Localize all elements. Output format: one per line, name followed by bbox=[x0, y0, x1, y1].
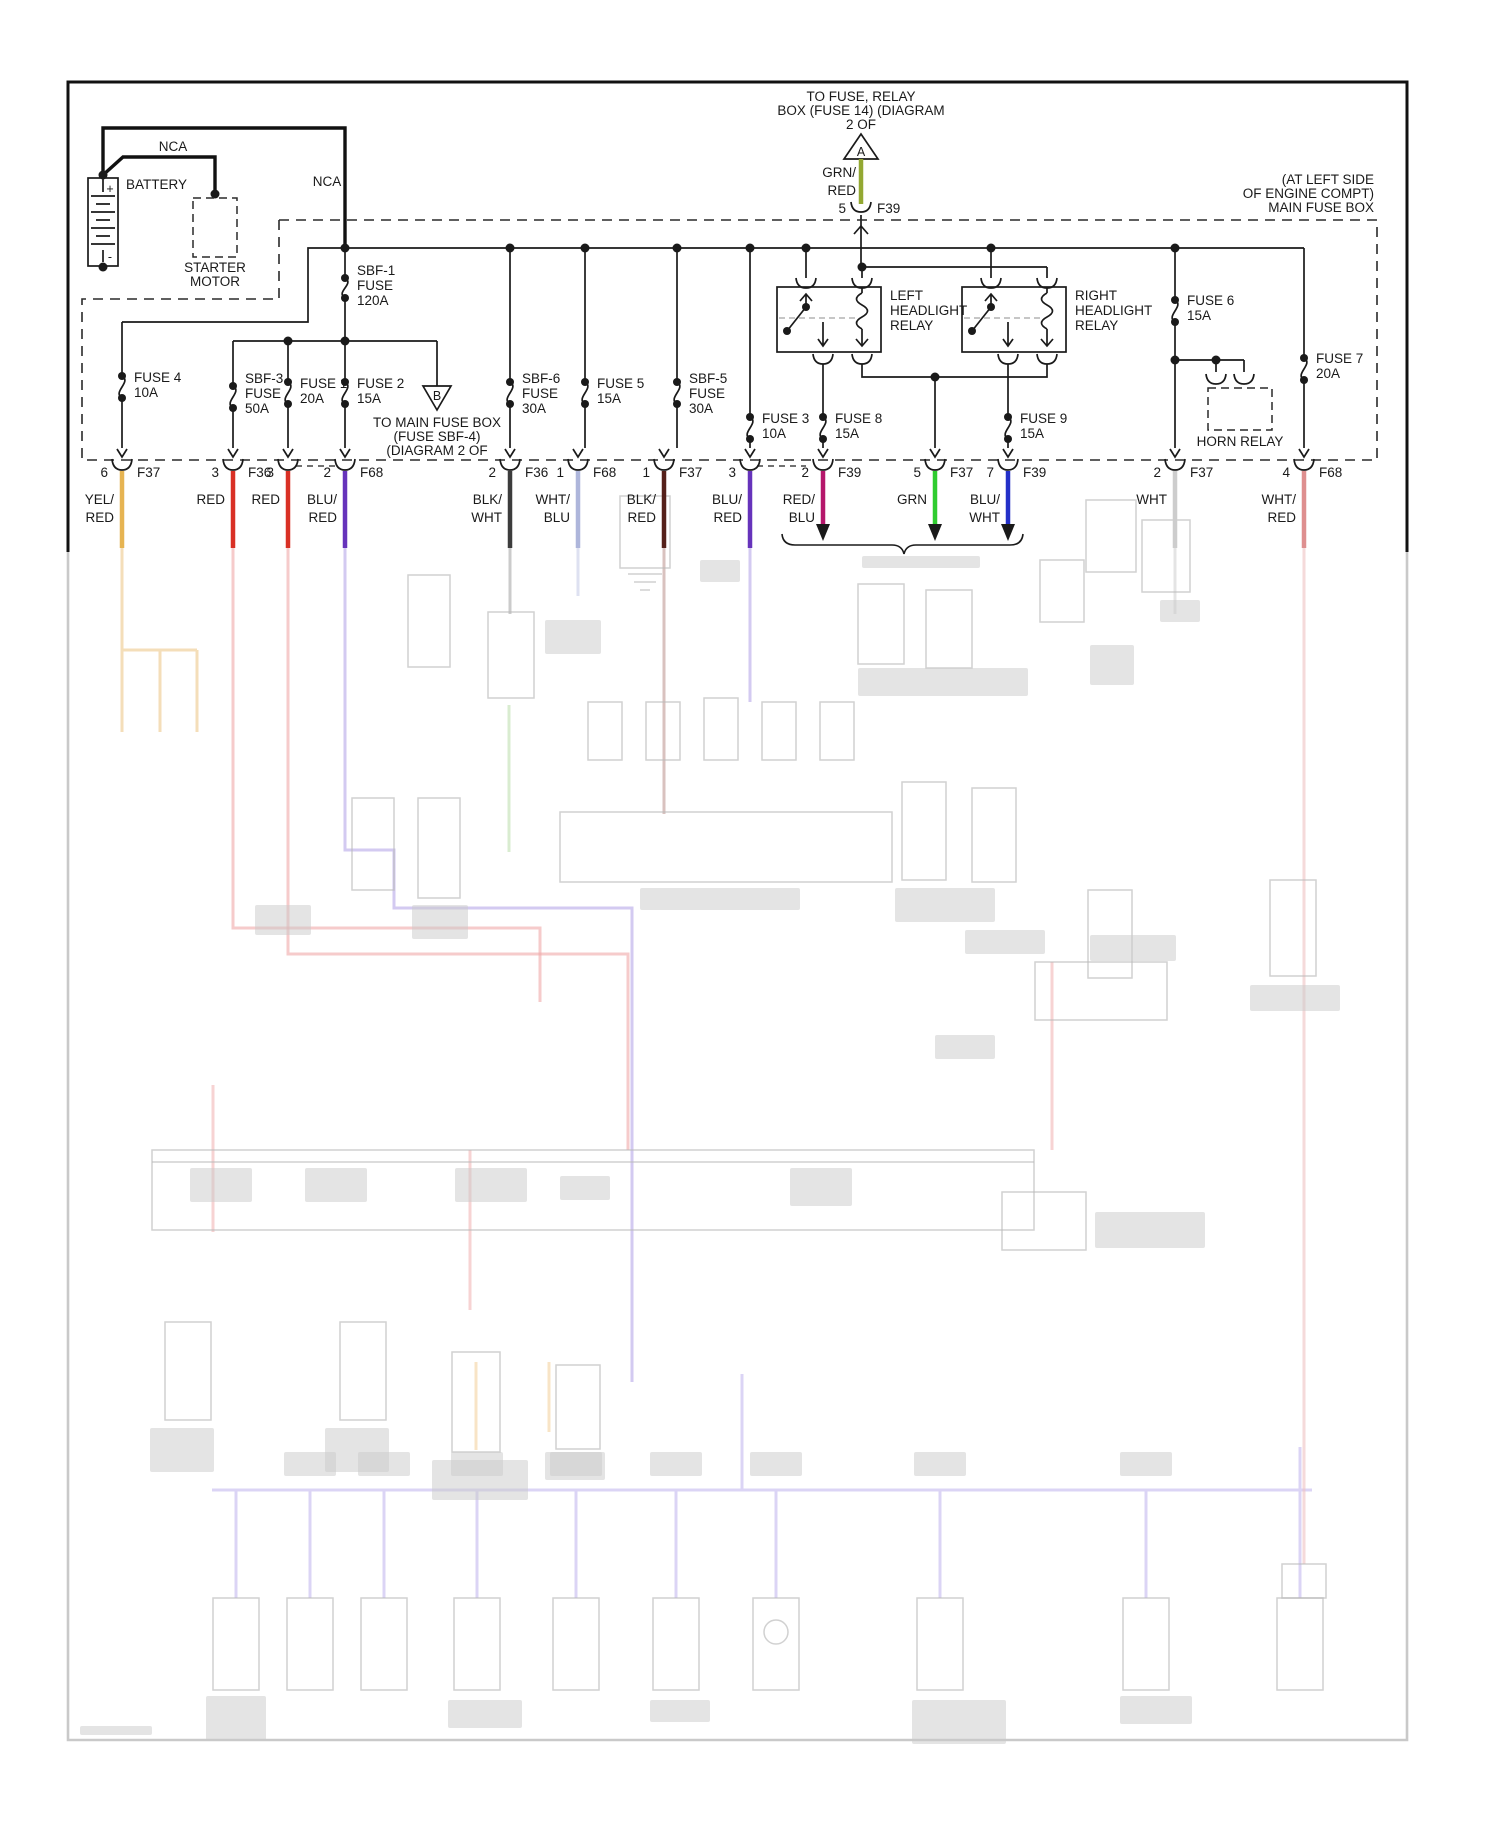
fuse-label: 15A bbox=[1187, 308, 1211, 323]
wire-color-label: WHT/ bbox=[1262, 492, 1297, 507]
fuse-terminal-dot bbox=[341, 378, 349, 386]
connector-cavity: F68 bbox=[1319, 465, 1342, 480]
wire-color-label: BLK/ bbox=[473, 492, 503, 507]
fuse-label: FUSE 9 bbox=[1020, 411, 1067, 426]
fuse-terminal-dot bbox=[673, 400, 681, 408]
wire-color-label: RED bbox=[308, 510, 337, 525]
fuse-terminal-dot bbox=[581, 400, 589, 408]
fuse-terminal-dot bbox=[746, 413, 754, 421]
starter-motor-label2: MOTOR bbox=[190, 274, 240, 289]
fuse-label: FUSE 3 bbox=[762, 411, 809, 426]
connector-pin: 4 bbox=[1282, 465, 1290, 480]
fuse-terminal-dot bbox=[118, 394, 126, 402]
fuse-label: FUSE 4 bbox=[134, 370, 182, 385]
fuse-terminal-dot bbox=[581, 378, 589, 386]
fuse-terminal-dot bbox=[1004, 435, 1012, 443]
wire-color-label: RED bbox=[627, 510, 656, 525]
wire-color-label: YEL/ bbox=[85, 492, 115, 507]
fuse-label: FUSE 6 bbox=[1187, 293, 1234, 308]
connector-cavity: F39 bbox=[838, 465, 861, 480]
battery-minus: - bbox=[108, 250, 112, 264]
fuse-terminal-dot bbox=[118, 372, 126, 380]
connector-cavity: F37 bbox=[137, 465, 160, 480]
connector-pin: 3 bbox=[266, 465, 274, 480]
wire-color-label: BLU bbox=[789, 510, 815, 525]
fuse-label: FUSE 1 bbox=[300, 376, 347, 391]
connector-pin: 2 bbox=[1153, 465, 1161, 480]
fuse-terminal-dot bbox=[746, 435, 754, 443]
b-note-line2: (FUSE SBF-4) bbox=[393, 429, 480, 444]
wire-color-label: WHT bbox=[471, 510, 502, 525]
connector-cavity: F37 bbox=[950, 465, 973, 480]
wire-color-label: RED bbox=[196, 492, 225, 507]
location-note-line3: MAIN FUSE BOX bbox=[1268, 200, 1374, 215]
fuse-terminal-dot bbox=[1171, 296, 1179, 304]
connector-pin: 5 bbox=[913, 465, 921, 480]
fuse-label: 10A bbox=[762, 426, 786, 441]
wire-color-label: BLU/ bbox=[712, 492, 742, 507]
grn-red-label1: GRN/ bbox=[822, 165, 856, 180]
horn-relay-label: HORN RELAY bbox=[1197, 434, 1284, 449]
fuse-terminal-dot bbox=[1004, 413, 1012, 421]
fuse-label: 15A bbox=[357, 391, 381, 406]
wire-color-label: WHT bbox=[969, 510, 1000, 525]
wire-color-label: WHT/ bbox=[536, 492, 571, 507]
triangle-b-letter: B bbox=[433, 389, 441, 403]
wire-color-label: BLU/ bbox=[307, 492, 337, 507]
b-note-line3: (DIAGRAM 2 OF bbox=[386, 443, 487, 458]
right-relay-label3: RELAY bbox=[1075, 318, 1118, 333]
top-connector-cavity: F39 bbox=[877, 201, 900, 216]
fuse-terminal-dot bbox=[1300, 354, 1308, 362]
connector-cavity: F36 bbox=[525, 465, 548, 480]
top-note-line1: TO FUSE, RELAY bbox=[806, 89, 915, 104]
fuse-label: 10A bbox=[134, 385, 158, 400]
fuse-label: 30A bbox=[522, 401, 546, 416]
nca-label-right: NCA bbox=[313, 174, 342, 189]
wire-color-label: RED/ bbox=[783, 492, 816, 507]
connector-pin: 3 bbox=[728, 465, 736, 480]
fuse-terminal-dot bbox=[341, 294, 349, 302]
wire-color-label: BLU bbox=[544, 510, 570, 525]
left-relay-label3: RELAY bbox=[890, 318, 933, 333]
fuse-label: SBF-6 bbox=[522, 371, 560, 386]
fuse-label: FUSE bbox=[522, 386, 558, 401]
connector-cavity: F39 bbox=[1023, 465, 1046, 480]
fuse-label: FUSE bbox=[245, 386, 281, 401]
fuse-terminal-dot bbox=[229, 382, 237, 390]
fuse-label: 50A bbox=[245, 401, 269, 416]
fuse-label: FUSE 2 bbox=[357, 376, 404, 391]
fuse-terminal-dot bbox=[506, 400, 514, 408]
fuse-terminal-dot bbox=[506, 378, 514, 386]
grn-red-label2: RED bbox=[827, 183, 856, 198]
triangle-a-letter: A bbox=[857, 145, 866, 159]
nca-label-left: NCA bbox=[159, 139, 188, 154]
wire-color-label: RED bbox=[713, 510, 742, 525]
top-note-line2: BOX (FUSE 14) (DIAGRAM bbox=[777, 103, 944, 118]
fuse-terminal-dot bbox=[284, 400, 292, 408]
connector-cavity: F37 bbox=[1190, 465, 1213, 480]
battery-plus: + bbox=[106, 182, 113, 196]
fuse-terminal-dot bbox=[229, 404, 237, 412]
connector-cavity: F68 bbox=[593, 465, 616, 480]
fuse-label: FUSE 5 bbox=[597, 376, 644, 391]
location-note-line1: (AT LEFT SIDE bbox=[1282, 172, 1374, 187]
fuse-terminal-dot bbox=[819, 413, 827, 421]
b-note-line1: TO MAIN FUSE BOX bbox=[373, 415, 501, 430]
connector-pin: 2 bbox=[801, 465, 809, 480]
left-relay-label1: LEFT bbox=[890, 288, 923, 303]
connector-pin: 2 bbox=[488, 465, 496, 480]
fuse-label: 15A bbox=[1020, 426, 1044, 441]
connector-pin: 2 bbox=[323, 465, 331, 480]
wire-color-label: GRN bbox=[897, 492, 927, 507]
fuse-terminal-dot bbox=[819, 435, 827, 443]
fuse-label: 15A bbox=[597, 391, 621, 406]
connector-pin: 1 bbox=[642, 465, 650, 480]
fuse-label: 120A bbox=[357, 293, 389, 308]
wire-color-label: BLK/ bbox=[627, 492, 657, 507]
fuse-terminal-dot bbox=[284, 378, 292, 386]
connector-pin: 3 bbox=[211, 465, 219, 480]
fuse-label: SBF-5 bbox=[689, 371, 727, 386]
fuse-label: FUSE bbox=[689, 386, 725, 401]
wire-color-label: WHT bbox=[1136, 492, 1167, 507]
wire-color-label: RED bbox=[85, 510, 114, 525]
wire-color-label: RED bbox=[251, 492, 280, 507]
wiring-diagram: + - BATTERY NCA NCA STARTER MOTOR TO FUS… bbox=[0, 0, 1500, 1828]
starter-motor-label: STARTER bbox=[184, 260, 246, 275]
connector-cavity: F37 bbox=[679, 465, 702, 480]
fuse-label: FUSE bbox=[357, 278, 393, 293]
wire-color-label: RED bbox=[1267, 510, 1296, 525]
fuse-label: 15A bbox=[835, 426, 859, 441]
connector-pin: 7 bbox=[986, 465, 994, 480]
fuse-label: 20A bbox=[1316, 366, 1340, 381]
right-relay-label2: HEADLIGHT bbox=[1075, 303, 1152, 318]
wiring-diagram-page: + - BATTERY NCA NCA STARTER MOTOR TO FUS… bbox=[0, 0, 1500, 1828]
right-relay-label1: RIGHT bbox=[1075, 288, 1117, 303]
top-note-line3: 2 OF bbox=[846, 117, 876, 132]
fuse-terminal-dot bbox=[1300, 376, 1308, 384]
connector-pin: 1 bbox=[556, 465, 564, 480]
fuse-label: SBF-3 bbox=[245, 371, 283, 386]
fuse-label: FUSE 8 bbox=[835, 411, 882, 426]
fuse-label: SBF-1 bbox=[357, 263, 395, 278]
connector-cavity: F68 bbox=[360, 465, 383, 480]
fuse-label: 30A bbox=[689, 401, 713, 416]
fuse-label: FUSE 7 bbox=[1316, 351, 1363, 366]
connector-pin: 6 bbox=[100, 465, 108, 480]
battery-label: BATTERY bbox=[126, 177, 187, 192]
top-connector-pin: 5 bbox=[838, 201, 846, 216]
fuse-terminal-dot bbox=[341, 400, 349, 408]
wire-color-label: BLU/ bbox=[970, 492, 1000, 507]
left-relay-label2: HEADLIGHT bbox=[890, 303, 967, 318]
fuse-terminal-dot bbox=[1171, 318, 1179, 326]
fuse-terminal-dot bbox=[673, 378, 681, 386]
fuse-label: 20A bbox=[300, 391, 324, 406]
fuse-terminal-dot bbox=[341, 274, 349, 282]
location-note-line2: OF ENGINE COMPT) bbox=[1243, 186, 1374, 201]
